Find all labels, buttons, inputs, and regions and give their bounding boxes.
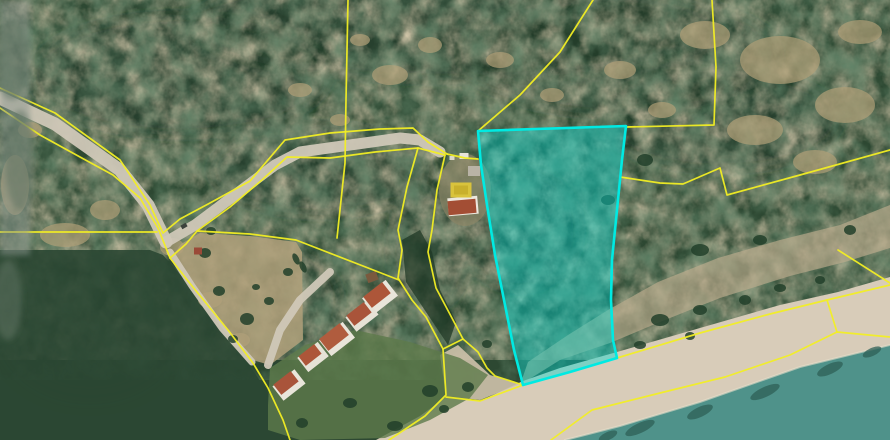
- satellite-map-svg: [0, 0, 890, 440]
- satellite-map-view[interactable]: [0, 0, 890, 440]
